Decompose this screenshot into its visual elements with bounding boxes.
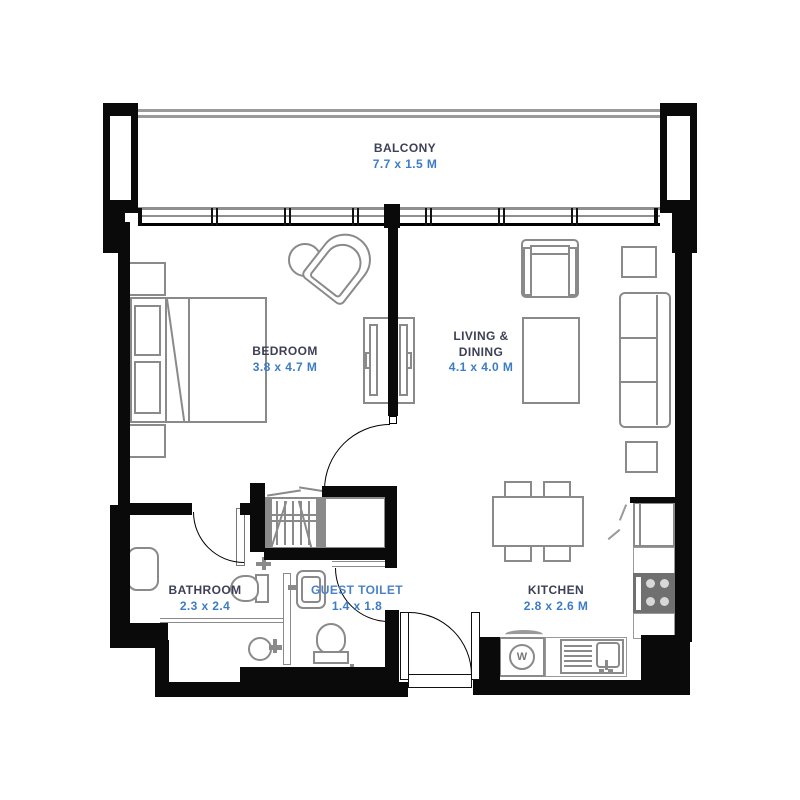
dining-chair-icon — [543, 545, 571, 562]
sink-drainboard-line — [564, 650, 592, 652]
bathroom-label: BATHROOM 2.3 x 2.4 — [140, 583, 270, 614]
hanger-rod-line — [268, 520, 322, 522]
balcony-railing-icon — [138, 109, 660, 112]
kitchen-counter — [633, 547, 675, 574]
wall-bathroom-top-b — [240, 503, 265, 515]
nightstand-icon — [128, 262, 166, 296]
pillar-top-left-core — [110, 116, 131, 200]
window-end-cap — [138, 208, 142, 226]
sink-drainboard-line — [564, 645, 592, 647]
room-name: LIVING & — [420, 329, 542, 345]
washer-drum-icon: W — [509, 644, 535, 670]
room-name: DINING — [420, 345, 542, 361]
floor-plan: W BALCONY 7.7 x 1.5 M BEDROOM 3.8 x 4.7 … — [0, 0, 800, 800]
armchair-back — [530, 245, 570, 255]
sink-basin-icon — [596, 642, 620, 668]
shower-handle-icon — [273, 639, 277, 653]
window-mullion-icon — [425, 208, 432, 226]
room-dims: 4.1 x 4.0 M — [420, 360, 542, 376]
stove-hob-icon — [633, 573, 675, 614]
pillar-top-right-core — [667, 116, 690, 200]
kitchen-label: KITCHEN 2.8 x 2.6 M — [490, 583, 622, 614]
pillow-icon — [134, 305, 161, 356]
sofa-seat-line — [621, 381, 657, 383]
room-name: BEDROOM — [210, 344, 360, 360]
wardrobe-divider-line — [324, 499, 326, 547]
dining-chair-icon — [504, 545, 532, 562]
bedroom-door-swing-icon — [324, 424, 390, 490]
guest-toilet-door-header — [332, 561, 393, 567]
wardrobe-side-panel — [316, 499, 324, 547]
toilet-tank — [313, 651, 349, 664]
side-table-icon — [625, 441, 658, 473]
wall-bottom-right-block — [641, 635, 690, 692]
entrance-door-leaf — [408, 674, 472, 688]
door-hinge-cap — [389, 416, 397, 424]
nightstand-icon — [128, 424, 166, 458]
bathroom-door-swing-icon — [193, 512, 244, 563]
entrance-jamb-right — [471, 612, 480, 680]
room-name: GUEST TOILET — [294, 583, 420, 599]
wall-hall-guest-toilet — [385, 610, 399, 697]
sink-drainboard-line — [564, 665, 592, 667]
wall-closet-bottom — [264, 548, 385, 560]
closet-chevron — [267, 489, 301, 496]
wall-kitchen-partition — [630, 497, 675, 503]
bed-blanket-line — [188, 299, 190, 421]
window-mullion-icon — [571, 208, 578, 226]
wall-left-upper — [118, 222, 130, 508]
wall-right — [675, 222, 692, 642]
wall-closet-right — [385, 486, 397, 568]
entrance-door-swing-icon — [409, 612, 472, 675]
sink-faucet-icon — [599, 669, 604, 673]
tv-screen-notch — [406, 352, 412, 369]
window-end-cap — [654, 208, 658, 226]
room-dims: 2.3 x 2.4 — [140, 599, 270, 615]
fridge-door-line — [639, 504, 641, 545]
guest-toilet-label: GUEST TOILET 1.4 x 1.8 — [294, 583, 420, 614]
balcony-label: BALCONY 7.7 x 1.5 M — [325, 141, 485, 172]
tv-screen-notch — [365, 352, 371, 369]
sink-drainboard-line — [564, 655, 592, 657]
pillow-icon — [134, 361, 161, 414]
balcony-railing-icon — [138, 115, 660, 118]
bed-headboard-line — [165, 299, 167, 421]
sofa-seat-line — [621, 337, 657, 339]
accent-chair-icon — [299, 223, 382, 309]
dining-table-icon — [492, 496, 584, 547]
room-name: BALCONY — [325, 141, 485, 157]
wall-under-guest-toilet — [240, 667, 388, 683]
wardrobe-side-panel — [266, 499, 272, 547]
living-dining-label: LIVING & DINING 4.1 x 4.0 M — [420, 329, 542, 376]
window-mullion-icon — [211, 208, 218, 226]
wall-bottom-left — [155, 682, 408, 697]
bedroom-label: BEDROOM 3.8 x 4.7 M — [210, 344, 360, 375]
wall-bathroom-top-a — [118, 503, 192, 515]
window-mullion-icon — [352, 208, 359, 226]
side-table-icon — [621, 246, 657, 278]
room-dims: 2.8 x 2.6 M — [490, 599, 622, 615]
wall-closet-left-stub — [250, 483, 265, 552]
room-dims: 3.8 x 4.7 M — [210, 360, 360, 376]
hanger-line — [292, 501, 294, 545]
wall-tap-icon — [256, 562, 271, 566]
wall-bedroom-living-divider — [388, 222, 398, 416]
bathroom-shower-divider-line — [160, 618, 283, 623]
sofa-icon — [619, 292, 671, 428]
sink-drainboard-line — [564, 660, 592, 662]
toilet-bowl-icon — [316, 623, 346, 654]
fridge-swing-dash — [619, 504, 627, 521]
room-dims: 7.7 x 1.5 M — [325, 157, 485, 173]
window-mullion-icon — [284, 208, 291, 226]
sofa-backrest-line — [656, 295, 658, 425]
hanger-rod-line — [268, 514, 322, 516]
entrance-jamb-left — [400, 612, 409, 680]
window-mullion-icon — [498, 208, 505, 226]
washer-label: W — [517, 651, 527, 663]
wall-entrance-right-stub — [480, 637, 500, 682]
room-dims: 1.4 x 1.8 — [294, 599, 420, 615]
room-name: KITCHEN — [490, 583, 622, 599]
wall-left-lower — [110, 505, 130, 625]
fridge-swing-dash — [608, 529, 621, 540]
sink-faucet-icon — [608, 669, 613, 673]
room-name: BATHROOM — [140, 583, 270, 599]
